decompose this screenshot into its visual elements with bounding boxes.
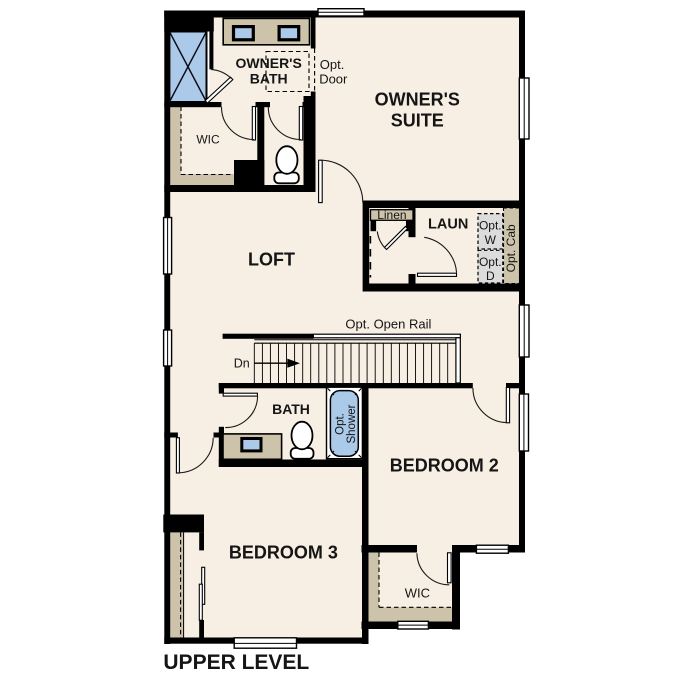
svg-text:BEDROOM 3: BEDROOM 3 — [229, 542, 338, 562]
svg-text:W: W — [485, 233, 497, 247]
svg-text:Dn: Dn — [234, 357, 250, 371]
svg-text:SUITE: SUITE — [391, 111, 444, 131]
svg-text:Shower: Shower — [346, 404, 358, 443]
svg-text:OWNER'S: OWNER'S — [236, 55, 302, 71]
svg-text:BATH: BATH — [272, 401, 310, 417]
svg-text:Opt. Cab: Opt. Cab — [504, 224, 518, 272]
svg-text:LOFT: LOFT — [248, 250, 295, 270]
svg-text:BATH: BATH — [250, 71, 288, 87]
svg-text:Opt.: Opt. — [479, 219, 502, 233]
svg-text:Opt.: Opt. — [320, 57, 345, 72]
svg-text:WIC: WIC — [405, 585, 430, 600]
svg-text:UPPER LEVEL: UPPER LEVEL — [163, 651, 309, 674]
svg-text:Opt. Open Rail: Opt. Open Rail — [345, 317, 431, 332]
svg-text:WIC: WIC — [196, 133, 220, 147]
svg-text:Opt.: Opt. — [479, 255, 502, 269]
svg-text:Opt.: Opt. — [334, 413, 346, 435]
svg-text:Linen: Linen — [377, 208, 406, 222]
svg-text:LAUN: LAUN — [428, 216, 468, 232]
svg-text:D: D — [486, 269, 495, 283]
svg-text:BEDROOM 2: BEDROOM 2 — [390, 456, 499, 476]
svg-text:OWNER'S: OWNER'S — [375, 90, 460, 110]
svg-text:Door: Door — [319, 72, 348, 87]
